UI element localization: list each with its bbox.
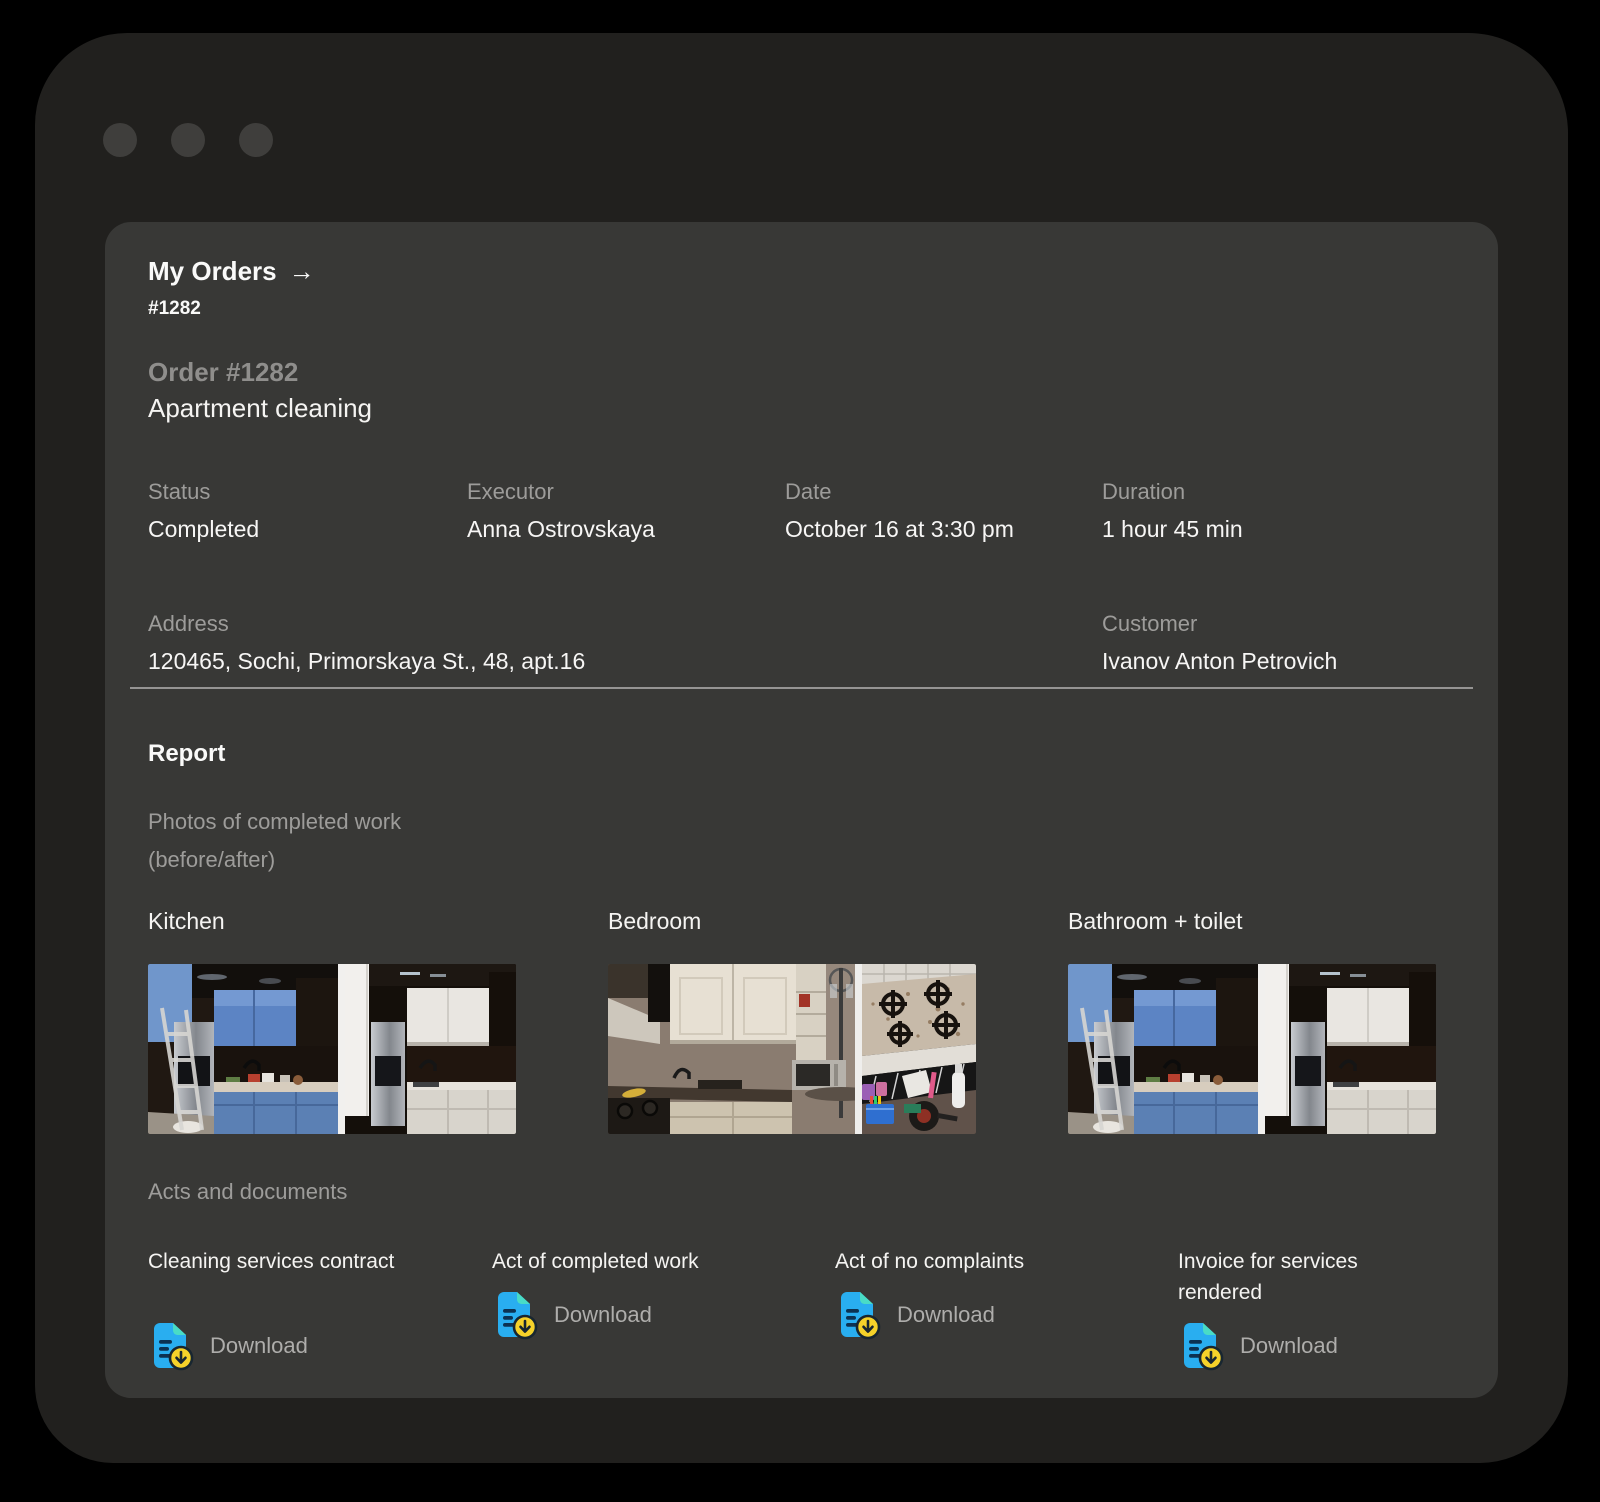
photo-group-bathroom: Bathroom + toilet — [1068, 906, 1436, 1134]
document-download-icon — [148, 1321, 194, 1371]
field-value: 1 hour 45 min — [1102, 515, 1455, 543]
field-value: Anna Ostrovskaya — [467, 515, 785, 543]
breadcrumb-label[interactable]: My Orders — [148, 256, 277, 286]
section-divider — [130, 687, 1473, 689]
breadcrumb-order-id: #1282 — [148, 298, 1455, 320]
field-value: Ivanov Anton Petrovich — [1102, 647, 1455, 675]
document-title: Act of no complaints — [835, 1246, 1178, 1277]
window-dot-icon — [103, 123, 137, 157]
order-fields: Status Completed Executor Anna Ostrovska… — [148, 479, 1455, 675]
download-label: Download — [554, 1302, 652, 1328]
photo-group-label: Bathroom + toilet — [1068, 906, 1436, 936]
field-label: Customer — [1102, 611, 1455, 637]
document-download-icon — [492, 1290, 538, 1340]
window-dot-icon — [239, 123, 273, 157]
field-label: Executor — [467, 479, 785, 505]
photo-group-label: Kitchen — [148, 906, 516, 936]
kitchen-before-after-photo — [148, 964, 516, 1134]
documents-section-title: Acts and documents — [148, 1178, 1455, 1206]
field-customer: Customer Ivanov Anton Petrovich — [1102, 611, 1455, 675]
arrow-right-icon: → — [289, 256, 315, 286]
bathroom-before-after-photo — [1068, 964, 1436, 1134]
download-no-complaints-button[interactable]: Download — [835, 1290, 995, 1340]
order-number-title: Order #1282 — [148, 356, 1455, 389]
field-value: 120465, Sochi, Primorskaya St., 48, apt.… — [148, 647, 1102, 675]
photos-section-title: Photos of completed work — [148, 803, 1455, 841]
window-controls — [103, 123, 273, 157]
photo-group-label: Bedroom — [608, 906, 976, 936]
field-date: Date October 16 at 3:30 pm — [785, 479, 1102, 543]
photo-group-kitchen: Kitchen — [148, 906, 516, 1134]
bedroom-before-after-photo — [608, 964, 976, 1134]
document-title: Invoice for services rendered — [1178, 1246, 1378, 1308]
download-contract-button[interactable]: Download — [148, 1321, 308, 1371]
order-card: My Orders → #1282 Order #1282 Apartment … — [105, 222, 1498, 1398]
field-label: Duration — [1102, 479, 1455, 505]
document-title: Cleaning services contract — [148, 1246, 492, 1308]
field-status: Status Completed — [148, 479, 467, 543]
download-label: Download — [897, 1302, 995, 1328]
report-heading: Report — [148, 739, 1455, 769]
field-duration: Duration 1 hour 45 min — [1102, 479, 1455, 543]
document-item-invoice: Invoice for services rendered Download — [1178, 1246, 1455, 1371]
document-download-icon — [1178, 1321, 1224, 1371]
document-item-act-completed: Act of completed work Download — [492, 1246, 835, 1371]
photos-section-subtitle: (before/after) — [148, 841, 1455, 879]
photo-group-bedroom: Bedroom — [608, 906, 976, 1134]
breadcrumb[interactable]: My Orders → — [148, 256, 315, 286]
order-service-title: Apartment cleaning — [148, 391, 1455, 425]
download-invoice-button[interactable]: Download — [1178, 1321, 1338, 1371]
field-value: Completed — [148, 515, 467, 543]
window-dot-icon — [171, 123, 205, 157]
documents-grid: Cleaning services contract Download Act … — [148, 1246, 1455, 1371]
field-value: October 16 at 3:30 pm — [785, 515, 1102, 543]
download-act-completed-button[interactable]: Download — [492, 1290, 652, 1340]
field-label: Status — [148, 479, 467, 505]
document-download-icon — [835, 1290, 881, 1340]
document-title: Act of completed work — [492, 1246, 835, 1277]
field-label: Address — [148, 611, 1102, 637]
field-executor: Executor Anna Ostrovskaya — [467, 479, 785, 543]
field-address: Address 120465, Sochi, Primorskaya St., … — [148, 611, 1102, 675]
photo-grid: Kitchen Bedroom Bathroom + toilet — [148, 906, 1455, 1134]
document-item-contract: Cleaning services contract Download — [148, 1246, 492, 1371]
download-label: Download — [210, 1333, 308, 1359]
document-item-no-complaints: Act of no complaints Download — [835, 1246, 1178, 1371]
field-label: Date — [785, 479, 1102, 505]
browser-window: My Orders → #1282 Order #1282 Apartment … — [35, 33, 1568, 1463]
download-label: Download — [1240, 1333, 1338, 1359]
